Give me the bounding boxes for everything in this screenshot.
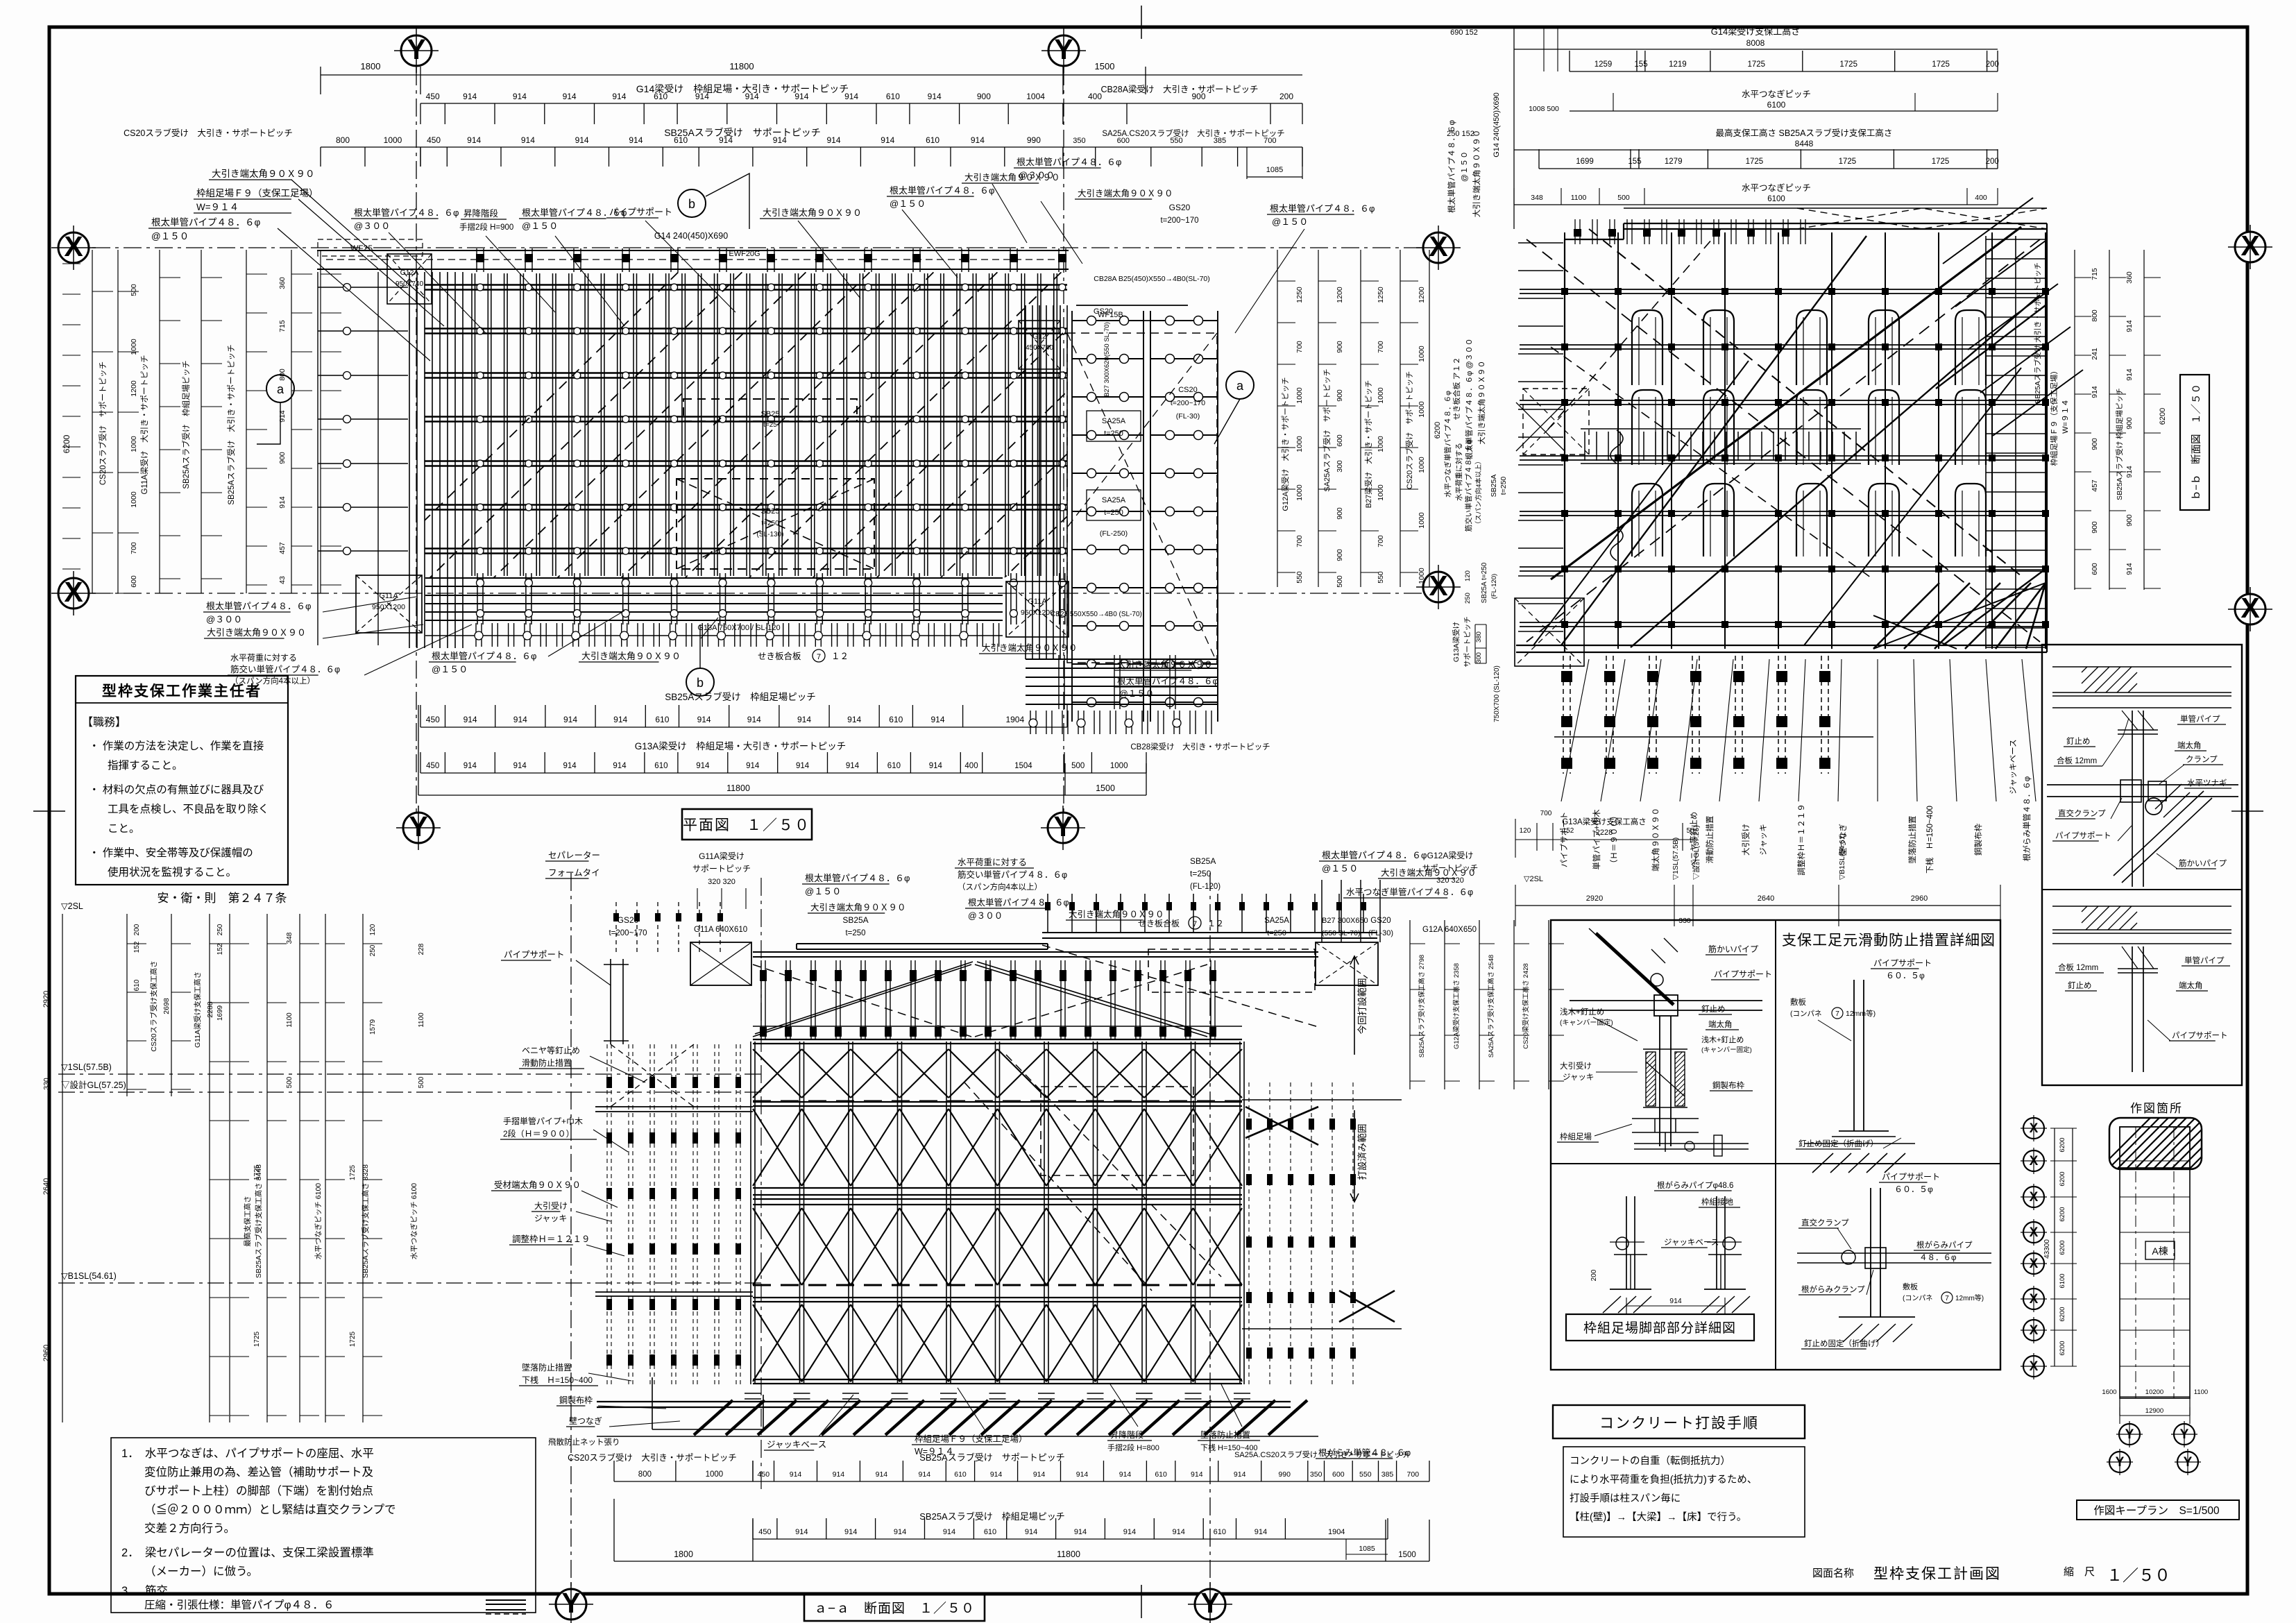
- svg-text:１２: １２: [831, 652, 849, 661]
- svg-text:1000: 1000: [384, 135, 402, 145]
- svg-text:914: 914: [847, 715, 861, 724]
- svg-text:700: 700: [1295, 341, 1304, 353]
- svg-text:1000: 1000: [1295, 484, 1304, 501]
- svg-text:914: 914: [513, 92, 527, 101]
- svg-text:2960: 2960: [42, 1345, 51, 1361]
- svg-text:墜落防止措置: 墜落防止措置: [1200, 1429, 1250, 1440]
- svg-text:914: 914: [745, 92, 759, 101]
- svg-text:大引き端太角９０Ｘ９０: 大引き端太角９０Ｘ９０: [207, 627, 306, 638]
- svg-text:ジャッキベース: ジャッキベース: [767, 1440, 826, 1450]
- svg-text:Y: Y: [2116, 1455, 2125, 1470]
- svg-text:990: 990: [1027, 135, 1041, 145]
- svg-text:@３００: @３００: [1019, 170, 1055, 180]
- svg-text:G11A: G11A: [1028, 597, 1047, 606]
- svg-text:１２: １２: [1207, 919, 1224, 928]
- svg-text:11800: 11800: [729, 61, 754, 71]
- svg-text:１／５０: １／５０: [2107, 1566, 2170, 1584]
- svg-text:715: 715: [278, 320, 287, 332]
- svg-text:G11A梁受け支保工高さ: G11A梁受け支保工高さ: [193, 971, 202, 1048]
- svg-text:ジャッキ: ジャッキ: [534, 1214, 567, 1223]
- svg-text:サポートピッチ: サポートピッチ: [1463, 616, 1472, 668]
- svg-text:ジャッキ: ジャッキ: [1563, 1073, 1594, 1082]
- svg-text:914: 914: [826, 135, 840, 145]
- svg-text:▽B1SL(54.61): ▽B1SL(54.61): [1838, 833, 1846, 880]
- svg-text:G14梁受け支保工高さ: G14梁受け支保工高さ: [1711, 26, 1801, 37]
- svg-text:1500: 1500: [1398, 1551, 1416, 1559]
- svg-text:6200: 6200: [2059, 1341, 2066, 1355]
- svg-text:300: 300: [1475, 652, 1483, 663]
- svg-text:610: 610: [889, 715, 903, 724]
- svg-text:7: 7: [1835, 1010, 1839, 1018]
- svg-text:360: 360: [278, 277, 287, 289]
- svg-text:水平ツナギ: 水平ツナギ: [2187, 779, 2227, 788]
- svg-text:B27梁受け 大引き・サポートピッチ: B27梁受け 大引き・サポートピッチ: [1363, 380, 1373, 509]
- svg-text:せき板合板: せき板合板: [758, 651, 801, 661]
- svg-text:WF25: WF25: [350, 244, 373, 253]
- svg-text:1100: 1100: [2194, 1388, 2208, 1396]
- svg-text:@１５０: @１５０: [805, 886, 841, 897]
- svg-text:▽設計GL(57.25): ▽設計GL(57.25): [61, 1080, 126, 1090]
- svg-text:単管パイプ: 単管パイプ: [2180, 714, 2220, 724]
- svg-text:b: b: [697, 676, 704, 690]
- svg-text:Y: Y: [561, 1587, 580, 1619]
- svg-text:610: 610: [984, 1528, 996, 1536]
- svg-text:枠組足場脚部部分詳細図: 枠組足場脚部部分詳細図: [1583, 1320, 1736, 1336]
- svg-text:914: 914: [773, 135, 787, 145]
- svg-text:t=250: t=250: [1267, 929, 1286, 937]
- svg-text:X: X: [64, 576, 83, 608]
- svg-text:400: 400: [964, 762, 978, 770]
- svg-text:1250: 1250: [1295, 287, 1304, 303]
- svg-text:ベニヤ等釘止め: ベニヤ等釘止め: [522, 1045, 580, 1055]
- svg-text:X: X: [2240, 592, 2259, 624]
- svg-text:G13A梁受け: G13A梁受け: [1452, 622, 1461, 662]
- svg-text:610: 610: [1155, 1470, 1167, 1479]
- svg-text:1000: 1000: [1110, 762, 1128, 770]
- svg-text:SB25Aスラブ受け支保工高さ 8328: SB25Aスラブ受け支保工高さ 8328: [361, 1164, 370, 1278]
- svg-text:水平つなぎピッチ: 水平つなぎピッチ: [1742, 90, 1811, 99]
- svg-text:610: 610: [654, 762, 667, 770]
- svg-text:大引き端太角９０Ｘ９０: 大引き端太角９０Ｘ９０: [581, 651, 681, 661]
- svg-text:1699: 1699: [216, 1005, 224, 1021]
- svg-text:700: 700: [1540, 810, 1552, 817]
- svg-text:SB25A: SB25A: [1490, 475, 1498, 498]
- svg-text:G13A 750X700 / SL-120: G13A 750X700 / SL-120: [697, 624, 780, 632]
- svg-text:450: 450: [758, 1470, 770, 1479]
- svg-text:914: 914: [513, 715, 527, 724]
- svg-text:1725: 1725: [1839, 158, 1857, 166]
- svg-text:t=250: t=250: [1104, 509, 1123, 517]
- svg-text:釘止め固定（折曲げ）: 釘止め固定（折曲げ）: [1798, 1139, 1878, 1148]
- svg-text:▽1SL(57.5B): ▽1SL(57.5B): [1672, 838, 1680, 880]
- svg-text:914: 914: [613, 762, 627, 770]
- svg-text:(SL-130): (SL-130): [757, 531, 784, 538]
- svg-text:墜落防止措置: 墜落防止措置: [522, 1362, 572, 1373]
- svg-text:914: 914: [695, 92, 709, 101]
- svg-text:端太角: 端太角: [2179, 981, 2203, 990]
- svg-text:1100: 1100: [1571, 194, 1587, 202]
- svg-text:CS20: CS20: [1178, 386, 1198, 394]
- svg-text:SB25Aスラブ受け サポートピッチ: SB25Aスラブ受け サポートピッチ: [919, 1452, 1064, 1463]
- svg-text:700: 700: [1407, 1470, 1420, 1479]
- svg-text:大引き端太角９０Ｘ９０: 大引き端太角９０Ｘ９０: [1069, 909, 1164, 919]
- svg-text:（≦＠２０００ｍｍ）とし緊結は直交クランプで: （≦＠２０００ｍｍ）とし緊結は直交クランプで: [144, 1503, 396, 1516]
- svg-text:1200: 1200: [1336, 287, 1344, 303]
- svg-text:G11A梁受け: G11A梁受け: [699, 851, 745, 861]
- svg-text:水平つなぎ単管パイプ４８．６φ: 水平つなぎ単管パイプ４８．６φ: [1346, 887, 1473, 897]
- svg-text:2920: 2920: [1586, 894, 1603, 903]
- svg-text:コンクリートの自重（転倒抵抗力）: コンクリートの自重（転倒抵抗力）: [1570, 1455, 1730, 1467]
- svg-text:914: 914: [747, 715, 761, 724]
- svg-text:B27 300X620(550 SL-70): B27 300X620(550 SL-70): [1103, 322, 1111, 397]
- svg-text:2640: 2640: [42, 1178, 51, 1195]
- svg-text:SB25A: SB25A: [1190, 856, 1216, 866]
- svg-text:浅木+釘止め: 浅木+釘止め: [1701, 1035, 1744, 1044]
- svg-text:914: 914: [795, 1528, 808, 1536]
- svg-text:(FL-250): (FL-250): [1100, 529, 1128, 538]
- svg-text:端太角: 端太角: [1708, 1020, 1733, 1029]
- svg-text:600: 600: [1336, 434, 1344, 447]
- svg-text:1725: 1725: [1932, 60, 1950, 69]
- svg-text:CB28梁受け 大引き・サポートピッチ: CB28梁受け 大引き・サポートピッチ: [1130, 742, 1270, 751]
- svg-text:水平荷重に対する: 水平荷重に対する: [230, 653, 297, 663]
- svg-text:▽2SL: ▽2SL: [1524, 875, 1543, 883]
- svg-text:250: 250: [369, 944, 377, 956]
- svg-text:914: 914: [2125, 466, 2134, 478]
- svg-text:348: 348: [286, 932, 294, 944]
- svg-text:700: 700: [1377, 535, 1385, 547]
- svg-text:914: 914: [1255, 1528, 1267, 1536]
- svg-text:パイプサポート: パイプサポート: [609, 207, 672, 217]
- svg-text:1504: 1504: [1014, 762, 1032, 770]
- svg-text:914: 914: [1234, 1470, 1246, 1479]
- svg-text:200: 200: [133, 924, 141, 935]
- svg-text:SB25Aスラブ受け 枠組足場ピッチ: SB25Aスラブ受け 枠組足場ピッチ: [919, 1511, 1064, 1522]
- svg-text:CB28 550X550→4B0 (SL-70): CB28 550X550→4B0 (SL-70): [1051, 611, 1142, 618]
- svg-text:X: X: [2030, 1190, 2039, 1205]
- svg-text:大引き端太角９０Ｘ９０: 大引き端太角９０Ｘ９０: [1078, 188, 1173, 198]
- svg-text:W=９１４: W=９１４: [2061, 399, 2070, 434]
- svg-text:1000: 1000: [1418, 401, 1426, 418]
- svg-text:(コンパネ: (コンパネ: [1790, 1010, 1822, 1018]
- svg-text:SB25: SB25: [761, 507, 780, 516]
- svg-text:900: 900: [1336, 549, 1344, 561]
- svg-text:▽B1SL(54.61): ▽B1SL(54.61): [61, 1271, 117, 1281]
- svg-text:@３００: @３００: [968, 911, 1003, 921]
- svg-text:安・衛・則 第２４７条: 安・衛・則 第２４７条: [158, 892, 287, 905]
- svg-text:@１５０: @１５０: [151, 231, 189, 241]
- svg-text:大引き端太角９０Ｘ９０: 大引き端太角９０Ｘ９０: [1477, 361, 1486, 445]
- svg-text:1200: 1200: [130, 380, 138, 397]
- svg-text:パイプサポート: パイプサポート: [1873, 958, 1932, 968]
- svg-text:450: 450: [426, 92, 440, 101]
- svg-text:457: 457: [2091, 479, 2099, 492]
- svg-text:ジャッキベース: ジャッキベース: [2009, 739, 2018, 794]
- svg-text:1725: 1725: [349, 1331, 357, 1347]
- svg-text:直交クランプ: 直交クランプ: [2058, 808, 2106, 818]
- svg-text:手摺2段 H=800: 手摺2段 H=800: [1107, 1443, 1159, 1452]
- svg-text:500: 500: [1071, 762, 1085, 770]
- svg-text:CB28A B25(450)X550→4B0(SL-70): CB28A B25(450)X550→4B0(SL-70): [1094, 275, 1210, 283]
- svg-text:【柱(壁)】→【大梁】→【床】で行う。: 【柱(壁)】→【大梁】→【床】で行う。: [1570, 1511, 1746, 1523]
- svg-text:釘止め固定（折曲げ）: 釘止め固定（折曲げ）: [1804, 1339, 1884, 1348]
- svg-text:指揮すること。: 指揮すること。: [108, 759, 183, 772]
- svg-text:G13A梁受け支保工高さ: G13A梁受け支保工高さ: [1562, 817, 1646, 826]
- svg-text:釘止め: 釘止め: [2066, 736, 2091, 746]
- svg-text:914: 914: [1123, 1528, 1136, 1536]
- svg-text:根太単管パイプ４８．６φ: 根太単管パイプ４８．６φ: [1117, 676, 1218, 686]
- svg-text:支保工足元滑動防止措置詳細図: 支保工足元滑動防止措置詳細図: [1782, 933, 1996, 949]
- svg-text:X: X: [1429, 230, 1447, 262]
- svg-text:CS20梁受け支保工高さ 2428: CS20梁受け支保工高さ 2428: [1522, 963, 1530, 1049]
- svg-text:下桟 Ｈ=150~400: 下桟 Ｈ=150~400: [522, 1375, 593, 1385]
- svg-text:500: 500: [1617, 194, 1630, 202]
- svg-text:914: 914: [919, 1470, 931, 1479]
- svg-text:EWF20G: EWF20G: [729, 250, 760, 258]
- svg-text:(550 SL-70): (550 SL-70): [1322, 929, 1360, 937]
- svg-text:ａ−ａ 断面図 １／５０: ａ−ａ 断面図 １／５０: [814, 1601, 975, 1616]
- svg-text:1000: 1000: [130, 491, 138, 508]
- svg-text:X: X: [2030, 1323, 2039, 1338]
- svg-text:根太単管パイプ４８．６φ: 根太単管パイプ４８．６φ: [968, 897, 1069, 908]
- svg-text:(FL-120): (FL-120): [1190, 883, 1221, 891]
- svg-text:914: 914: [1173, 1528, 1185, 1536]
- svg-text:G11A梁受け 大引き・サポートピッチ: G11A梁受け 大引き・サポートピッチ: [139, 355, 149, 494]
- svg-text:・ 作業中、安全帯等及び保護帽の: ・ 作業中、安全帯等及び保護帽の: [89, 847, 253, 859]
- svg-text:2段（Ｈ＝９００）: 2段（Ｈ＝９００）: [503, 1128, 575, 1139]
- svg-text:7: 7: [1193, 920, 1197, 928]
- svg-text:Y: Y: [1053, 810, 1072, 842]
- svg-text:11800: 11800: [726, 783, 750, 793]
- svg-text:枠組足場: 枠組足場: [1560, 1132, 1592, 1141]
- svg-text:1800: 1800: [361, 61, 381, 71]
- svg-text:根太単管パイプ４８．６φ: 根太単管パイプ４８．６φ: [151, 217, 260, 228]
- svg-text:152: 152: [1563, 827, 1574, 835]
- svg-text:釘止め: 釘止め: [2068, 980, 2092, 990]
- svg-text:t=250: t=250: [1190, 869, 1211, 878]
- svg-text:根太単管パイプ４８．６φ: 根太単管パイプ４８．６φ: [1322, 850, 1427, 860]
- svg-text:X: X: [1429, 570, 1447, 602]
- svg-text:筋かいパイプ: 筋かいパイプ: [2179, 858, 2227, 868]
- svg-text:200: 200: [1986, 158, 1999, 166]
- svg-text:SB25Aスラブ受け 枠組足場ピッチ: SB25Aスラブ受け 枠組足場ピッチ: [665, 691, 816, 702]
- svg-text:敷板: 敷板: [1790, 997, 1807, 1007]
- svg-text:1219: 1219: [1669, 60, 1687, 69]
- svg-text:11800: 11800: [1057, 1549, 1080, 1559]
- svg-text:6100: 6100: [2059, 1273, 2066, 1288]
- svg-text:900: 900: [2125, 417, 2134, 430]
- svg-text:G11A 640X610: G11A 640X610: [694, 926, 747, 934]
- svg-text:914: 914: [846, 762, 860, 770]
- svg-text:GS20: GS20: [1370, 917, 1391, 925]
- svg-text:800: 800: [336, 135, 350, 145]
- svg-text:1500: 1500: [1095, 61, 1115, 71]
- svg-text:550: 550: [1377, 571, 1385, 584]
- svg-text:12mm等): 12mm等): [1955, 1293, 1984, 1302]
- svg-text:450: 450: [426, 715, 440, 724]
- svg-text:浅木+釘止め: 浅木+釘止め: [1560, 1007, 1604, 1017]
- svg-text:（スパン方向4本以上）: （スパン方向4本以上）: [958, 882, 1042, 892]
- svg-text:GS20: GS20: [618, 915, 639, 925]
- svg-text:6100: 6100: [1767, 100, 1786, 110]
- svg-text:根がらみパイプ: 根がらみパイプ: [1916, 1240, 1973, 1250]
- svg-text:8448: 8448: [1795, 139, 1814, 148]
- svg-text:Y: Y: [409, 810, 427, 842]
- svg-text:2640: 2640: [1758, 894, 1774, 903]
- svg-text:6100: 6100: [1767, 195, 1785, 203]
- svg-text:G14 240(450)X690: G14 240(450)X690: [654, 231, 728, 241]
- svg-text:SB25: SB25: [761, 410, 780, 418]
- svg-text:900: 900: [2125, 514, 2134, 527]
- svg-text:500: 500: [418, 1076, 425, 1088]
- svg-text:サポートピッチ: サポートピッチ: [1422, 864, 1479, 873]
- svg-text:SA25A: SA25A: [1102, 496, 1126, 504]
- svg-text:型枠支保工作業主任者: 型枠支保工作業主任者: [102, 683, 262, 699]
- svg-text:600: 600: [2091, 563, 2099, 575]
- svg-text:610: 610: [926, 135, 939, 145]
- svg-text:43: 43: [278, 576, 287, 584]
- svg-text:12mm等): 12mm等): [1846, 1009, 1876, 1018]
- svg-text:b: b: [688, 197, 695, 211]
- svg-text:G14梁受け 枠組足場・大引き・サポートピッチ: G14梁受け 枠組足場・大引き・サポートピッチ: [636, 83, 849, 94]
- svg-text:せき板合板: せき板合板: [1138, 918, 1180, 928]
- svg-text:昇降階段: 昇降階段: [1110, 1429, 1143, 1440]
- svg-text:700: 700: [1264, 137, 1276, 145]
- svg-text:914: 914: [464, 715, 477, 724]
- svg-text:筋交い単管パイプ４８．６φ: 筋交い単管パイプ４８．６φ: [958, 869, 1067, 880]
- svg-text:水平つなぎ単管パイプ４８．６φ: 水平つなぎ単管パイプ４８．６φ: [1443, 391, 1452, 498]
- svg-text:SA25Aスラブ受け サポートピッチ: SA25Aスラブ受け サポートピッチ: [1322, 368, 1332, 491]
- svg-text:914: 914: [1033, 1470, 1046, 1479]
- svg-text:釘止め: 釘止め: [1701, 1004, 1726, 1014]
- svg-text:500: 500: [130, 284, 138, 296]
- svg-text:根太単管パイプ４８．６φ: 根太単管パイプ４８．６φ: [1017, 157, 1121, 167]
- svg-text:筋交い単管パイプ４８．６φ: 筋交い単管パイプ４８．６φ: [1464, 439, 1473, 532]
- svg-text:根太単管パイプ４８．６φ: 根太単管パイプ４８．６φ: [890, 185, 994, 196]
- svg-text:ジャッキ: ジャッキ: [1760, 824, 1768, 855]
- svg-text:3． 筋交: 3． 筋交: [121, 1584, 168, 1597]
- svg-text:最高支保工高さ: 最高支保工高さ: [243, 1196, 252, 1247]
- svg-text:６０．５φ: ６０．５φ: [1894, 1184, 1933, 1194]
- svg-text:水平荷重に対する: 水平荷重に対する: [1454, 443, 1463, 501]
- svg-text:大引き端太角９０Ｘ９０: 大引き端太角９０Ｘ９０: [982, 643, 1078, 653]
- svg-text:@１５０: @１５０: [1461, 151, 1469, 182]
- svg-text:1725: 1725: [1932, 158, 1950, 166]
- svg-text:1004: 1004: [1026, 92, 1045, 101]
- svg-text:セパレーター: セパレーター: [548, 851, 600, 860]
- svg-text:GS20: GS20: [1169, 203, 1191, 212]
- svg-text:1500: 1500: [1096, 783, 1115, 793]
- svg-text:パイプサポート: パイプサポート: [1882, 1172, 1940, 1182]
- svg-text:(FL-120): (FL-120): [1490, 574, 1498, 599]
- svg-text:450: 450: [426, 762, 439, 770]
- svg-text:(FL-30): (FL-30): [1176, 412, 1200, 420]
- svg-text:610: 610: [133, 979, 141, 991]
- svg-text:根がらみパイプφ48.6: 根がらみパイプφ48.6: [1657, 1180, 1733, 1190]
- svg-text:CS20スラブ受け サポートピッチ: CS20スラブ受け サポートピッチ: [1404, 371, 1414, 490]
- svg-text:根太単管パイプ４８．６φ: 根太単管パイプ４８．６φ: [1447, 120, 1456, 213]
- svg-text:914: 914: [797, 715, 811, 724]
- svg-text:914: 914: [881, 135, 894, 145]
- svg-text:根太単管パイプ４８．６φ: 根太単管パイプ４８．６φ: [354, 207, 459, 218]
- svg-text:914: 914: [563, 762, 577, 770]
- svg-text:こと。: こと。: [108, 823, 140, 835]
- svg-text:8008: 8008: [1746, 38, 1765, 48]
- svg-text:1725: 1725: [1746, 158, 1764, 166]
- svg-text:914: 914: [467, 135, 481, 145]
- svg-text:根太単管パイプ４８．６φ: 根太単管パイプ４８．６φ: [432, 651, 536, 661]
- svg-text:G11A: G11A: [379, 592, 398, 600]
- svg-text:(FL-30): (FL-30): [1368, 929, 1393, 937]
- svg-text:900: 900: [977, 92, 991, 101]
- svg-text:GS20: GS20: [1094, 307, 1113, 316]
- svg-text:610: 610: [886, 92, 900, 101]
- svg-text:端太角: 端太角: [2177, 741, 2202, 750]
- svg-text:348: 348: [1531, 194, 1543, 202]
- svg-text:914: 914: [719, 135, 733, 145]
- svg-text:1000: 1000: [1377, 387, 1385, 404]
- svg-text:914: 914: [1191, 1470, 1203, 1479]
- svg-text:6200: 6200: [2059, 1207, 2066, 1221]
- svg-text:12900: 12900: [2145, 1407, 2163, 1415]
- svg-text:枠組足場Ｆ９（支保工足場）: 枠組足場Ｆ９（支保工足場）: [915, 1434, 1028, 1444]
- svg-text:大引受け: 大引受け: [1741, 824, 1751, 856]
- svg-text:1100: 1100: [418, 1012, 425, 1028]
- svg-text:・ 作業の方法を決定し、作業を直接: ・ 作業の方法を決定し、作業を直接: [89, 740, 264, 752]
- svg-text:サポートピッチ: サポートピッチ: [692, 864, 751, 874]
- svg-text:昇降階段: 昇降階段: [464, 208, 498, 219]
- svg-text:1904: 1904: [1328, 1528, 1345, 1536]
- svg-text:450: 450: [758, 1528, 771, 1536]
- svg-text:（メーカー）に倣う。: （メーカー）に倣う。: [144, 1565, 258, 1578]
- svg-text:X: X: [2030, 1121, 2039, 1136]
- svg-text:@１５０: @１５０: [890, 198, 926, 209]
- svg-text:900: 900: [1336, 341, 1344, 353]
- svg-text:914: 914: [796, 762, 810, 770]
- svg-text:700: 700: [1377, 341, 1385, 353]
- svg-text:914: 914: [833, 1470, 845, 1479]
- svg-text:2698: 2698: [162, 998, 171, 1014]
- svg-text:により水平荷重を負担(抵抗力)するため、: により水平荷重を負担(抵抗力)するため、: [1570, 1474, 1757, 1486]
- svg-text:図面名称: 図面名称: [1812, 1567, 1854, 1579]
- svg-text:今回打設範囲: 今回打設範囲: [1357, 978, 1368, 1035]
- svg-text:フォームタイ: フォームタイ: [548, 868, 600, 878]
- svg-text:B27 300X650: B27 300X650: [1322, 917, 1368, 925]
- svg-text:610: 610: [654, 92, 667, 101]
- svg-text:合板 12mm: 合板 12mm: [2057, 756, 2097, 765]
- svg-text:550: 550: [1170, 137, 1182, 145]
- svg-text:下桟 Ｈ=150~400: 下桟 Ｈ=150~400: [1925, 806, 1934, 874]
- svg-text:せき板合板 ア１２: せき板合板 ア１２: [1452, 357, 1461, 420]
- svg-text:914: 914: [278, 496, 287, 509]
- svg-text:6200: 6200: [62, 434, 71, 453]
- svg-text:びサポート上柱）の脚部（下端）を割付始点: びサポート上柱）の脚部（下端）を割付始点: [144, 1484, 373, 1497]
- svg-text:パイプサポート: パイプサポート: [1714, 969, 1772, 979]
- svg-text:6200: 6200: [2159, 408, 2167, 425]
- svg-text:大引き端太角９０Ｘ９０: 大引き端太角９０Ｘ９０: [1117, 659, 1213, 670]
- svg-text:1279: 1279: [1665, 158, 1683, 166]
- svg-text:914: 914: [513, 762, 527, 770]
- svg-text:1259: 1259: [1595, 60, 1613, 69]
- svg-text:X: X: [2030, 1257, 2039, 1271]
- svg-text:800: 800: [638, 1470, 652, 1479]
- svg-text:1000: 1000: [1418, 346, 1426, 362]
- svg-text:1000: 1000: [1295, 387, 1304, 404]
- svg-text:2288: 2288: [206, 1001, 214, 1018]
- svg-text:1000: 1000: [1418, 457, 1426, 473]
- svg-text:2920: 2920: [42, 991, 51, 1008]
- svg-text:1725: 1725: [1748, 60, 1766, 69]
